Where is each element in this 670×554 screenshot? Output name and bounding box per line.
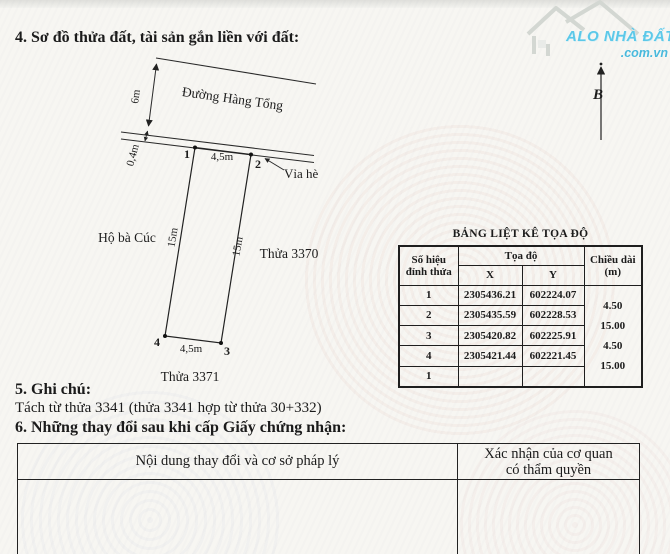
col-header-length: Chiều dài (m) <box>584 246 642 285</box>
road-top-edge-line <box>156 58 316 84</box>
col-header-coords: Tọa độ <box>458 246 584 265</box>
vertex-4-dot <box>163 334 167 338</box>
parcel-right-label: Thửa 3370 <box>260 246 319 261</box>
sidewalk-upper-line <box>121 132 314 156</box>
vertex-2-label: 2 <box>255 157 261 171</box>
edge-top-label: 4,5m <box>211 151 234 163</box>
coordinate-table: Số hiệu đỉnh thửa Tọa độ Chiều dài (m) X… <box>398 245 643 388</box>
changes-col2-body <box>458 480 639 554</box>
section6-heading: 6. Những thay đổi sau khi cấp Giấy chứng… <box>15 419 346 437</box>
changes-col1-body <box>18 480 458 554</box>
alo-nha-dat-logo: ALO NHÀ ĐẤT .com.vn <box>526 0 670 70</box>
sidewalk-width-label: 0,4m <box>124 142 141 167</box>
section5-heading: 5. Ghi chú: <box>15 381 91 399</box>
vertex-4-label: 4 <box>154 335 160 349</box>
logo-domain-text: .com.vn <box>621 46 668 60</box>
sidewalk-width-dimension-line <box>145 131 148 141</box>
vertex-2-dot <box>249 153 253 157</box>
edge-left-label: 15m <box>166 226 181 248</box>
changes-col2-header: Xác nhận của cơ quan có thẩm quyền <box>458 444 639 479</box>
coordinate-table-block: BẢNG LIỆT KÊ TỌA ĐỘ Số hiệu đỉnh thửa Tọ… <box>398 228 643 388</box>
parcel-bottom-label: Thửa 3371 <box>161 369 220 384</box>
parcel-boundary <box>165 148 251 344</box>
vertex-1-dot <box>193 146 197 150</box>
vertex-3-label: 3 <box>224 344 230 358</box>
road-width-label: 6m <box>129 88 143 104</box>
changes-table: Nội dung thay đổi và cơ sở pháp lý Xác n… <box>17 443 640 554</box>
col-header-y: Y <box>522 265 584 285</box>
road-width-dimension-line <box>149 64 157 126</box>
table-row: 1 2305436.21 602224.07 4.50 15.00 4.50 1… <box>399 285 642 305</box>
length-cell: 4.50 15.00 4.50 15.00 <box>584 285 642 387</box>
col-header-vertex: Số hiệu đỉnh thửa <box>399 246 458 285</box>
section5-note: Tách từ thửa 3341 (thửa 3341 hợp từ thửa… <box>15 400 322 417</box>
certificate-page: 4. Sơ đồ thửa đất, tài sản gắn liền với … <box>0 0 670 554</box>
neighbor-left-label: Hộ bà Cúc <box>98 230 156 245</box>
section4-heading: 4. Sơ đồ thửa đất, tài sản gắn liền với … <box>15 29 299 47</box>
edge-bottom-label: 4,5m <box>180 343 203 355</box>
sidewalk-callout-arrow <box>265 159 284 171</box>
edge-right-label: 15m <box>230 235 245 257</box>
road-name-label: Đường Hàng Tổng <box>181 84 284 113</box>
sidewalk-label: Vỉa hè <box>284 166 319 181</box>
logo-text: ALO NHÀ ĐẤT <box>566 28 670 45</box>
col-header-x: X <box>458 265 522 285</box>
sidewalk-lower-line <box>121 139 314 163</box>
changes-col1-header: Nội dung thay đổi và cơ sở pháp lý <box>18 444 458 479</box>
coordinate-table-title: BẢNG LIỆT KÊ TỌA ĐỘ <box>398 228 643 240</box>
north-label: B <box>592 87 603 103</box>
vertex-1-label: 1 <box>184 147 190 161</box>
vertex-3-dot <box>219 341 223 345</box>
